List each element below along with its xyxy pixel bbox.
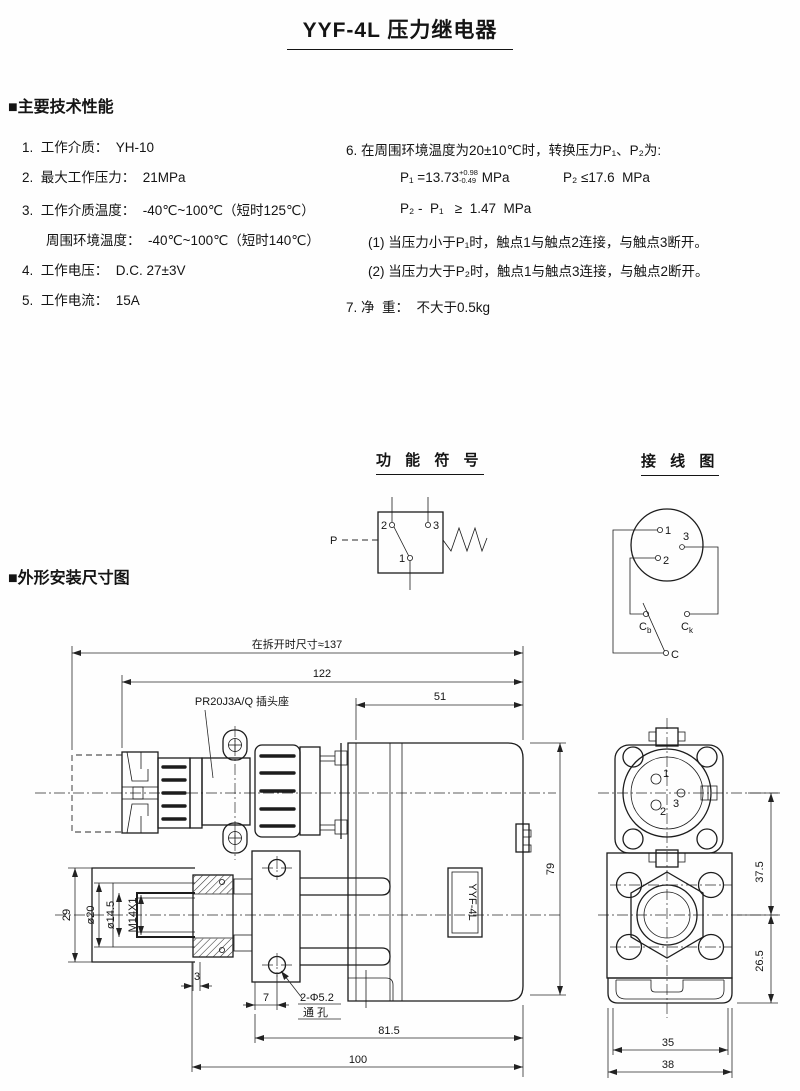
dim-dia14-5-label: ø14.5 bbox=[105, 901, 117, 929]
function-symbol-title: 功 能 符 号 bbox=[376, 449, 484, 475]
dim-26-5-label: 26.5 bbox=[754, 950, 766, 971]
dim-3-label: 3 bbox=[194, 971, 200, 983]
face-pin-2-label: 2 bbox=[660, 806, 666, 818]
dim-dia20-label: ø20 bbox=[85, 906, 97, 925]
face-pin-3-label: 3 bbox=[673, 798, 679, 810]
function-contact-2-label: 2 bbox=[381, 520, 387, 532]
face-pin-1-label: 1 bbox=[663, 768, 669, 780]
coupling-ring-rear bbox=[158, 758, 190, 828]
p1-tolerance-lower: -0.49 bbox=[459, 177, 478, 185]
dimensions-heading: ■外形安装尺寸图 bbox=[8, 564, 130, 588]
p1-formula-prefix: P₁ =13.73 bbox=[400, 170, 459, 185]
spec-line-2: 2. 最大工作压力： 21MPa bbox=[22, 166, 186, 186]
dim-7-label: 7 bbox=[263, 992, 269, 1004]
connector-flange-face bbox=[615, 728, 723, 867]
dim-29-label: 29 bbox=[61, 909, 73, 921]
function-contact-3-label: 3 bbox=[433, 520, 439, 532]
coupling-nut-front bbox=[255, 745, 300, 837]
spec-line-1: 1. 工作介质： YH-10 bbox=[22, 136, 154, 156]
plug-socket-label: PR20J3A/Q 插头座 bbox=[195, 694, 289, 708]
cable-clamp bbox=[122, 752, 158, 833]
dimension-drawing: YYF-4L bbox=[0, 618, 800, 1091]
dim-81-5-label: 81.5 bbox=[378, 1025, 399, 1037]
dim-overall-label: 在拆开时尺寸≈137 bbox=[252, 637, 342, 651]
dim-51-label: 51 bbox=[434, 691, 446, 703]
plug-rear-shell bbox=[300, 743, 347, 839]
dim-100-label: 100 bbox=[349, 1054, 367, 1066]
through-holes-label-1: 2-Φ5.2 bbox=[300, 992, 334, 1004]
datasheet-page: YYF-4L 压力继电器 ■主要技术性能 1. 工作介质： YH-10 2. 最… bbox=[0, 0, 800, 1091]
p1-tolerance: +0.98-0.49 bbox=[459, 169, 478, 186]
dim-122-label: 122 bbox=[313, 668, 331, 680]
wiring-pin-3-label: 3 bbox=[683, 531, 689, 543]
hex-fitting bbox=[193, 875, 252, 957]
plug-body-with-lugs bbox=[190, 730, 250, 853]
wiring-pin-2-label: 2 bbox=[663, 555, 669, 567]
spec-note-1: (1) 当压力小于P₁时，触点1与触点2连接，与触点3断开。 bbox=[368, 231, 708, 251]
dim-37-5-label: 37.5 bbox=[754, 861, 766, 882]
spec-note-2: (2) 当压力大于P₂时，触点1与触点3连接，与触点2断开。 bbox=[368, 260, 709, 280]
relay-main-body bbox=[348, 743, 531, 1008]
dim-79-label: 79 bbox=[545, 863, 557, 875]
specs-heading: ■主要技术性能 bbox=[8, 93, 114, 117]
spec-line-7: 7. 净 重： 不大于0.5kg bbox=[346, 296, 490, 316]
p1-formula: P₁ =13.73+0.98-0.49 MPa bbox=[400, 170, 509, 187]
p2-formula: P₂ ≤17.6 MPa bbox=[563, 170, 650, 185]
tie-rods bbox=[300, 878, 390, 965]
spec-line-6: 6. 在周围环境温度为20±10℃时，转换压力P₁、P₂为: bbox=[346, 139, 661, 159]
spec-line-3a: 3. 工作介质温度： -40℃~100℃（短时125℃） bbox=[22, 199, 315, 219]
spec-line-4: 4. 工作电压： D.C. 27±3V bbox=[22, 259, 185, 279]
wiring-pin-1-label: 1 bbox=[665, 525, 671, 537]
foot-bracket bbox=[608, 978, 732, 1003]
wiring-diagram-title: 接 线 图 bbox=[641, 450, 719, 476]
dim-35-label: 35 bbox=[662, 1037, 674, 1049]
function-p-label: P bbox=[330, 535, 337, 547]
diff-formula: P₂ - P₁ ≥ 1.47 MPa bbox=[400, 201, 531, 216]
title-wrap: YYF-4L 压力继电器 bbox=[0, 14, 800, 50]
p1-formula-unit: MPa bbox=[478, 170, 510, 185]
spec-line-3b: 周围环境温度： -40℃~100℃（短时140℃） bbox=[46, 229, 320, 249]
function-contact-1-label: 1 bbox=[399, 553, 405, 565]
function-symbol-graphics bbox=[342, 497, 487, 590]
page-title: YYF-4L 压力继电器 bbox=[287, 14, 514, 50]
through-holes-label-2: 通 孔 bbox=[303, 1006, 328, 1019]
dim-m14x1-label: M14X1 bbox=[127, 898, 139, 933]
mounting-bracket bbox=[252, 851, 300, 982]
function-symbol-diagram: P 2 3 1 bbox=[320, 476, 500, 606]
cable-outline bbox=[72, 755, 122, 832]
dim-38-label: 38 bbox=[662, 1059, 674, 1071]
body-end-face bbox=[607, 853, 732, 978]
nameplate-label: YYF-4L bbox=[466, 883, 478, 920]
spec-line-5: 5. 工作电流： 15A bbox=[22, 289, 140, 309]
